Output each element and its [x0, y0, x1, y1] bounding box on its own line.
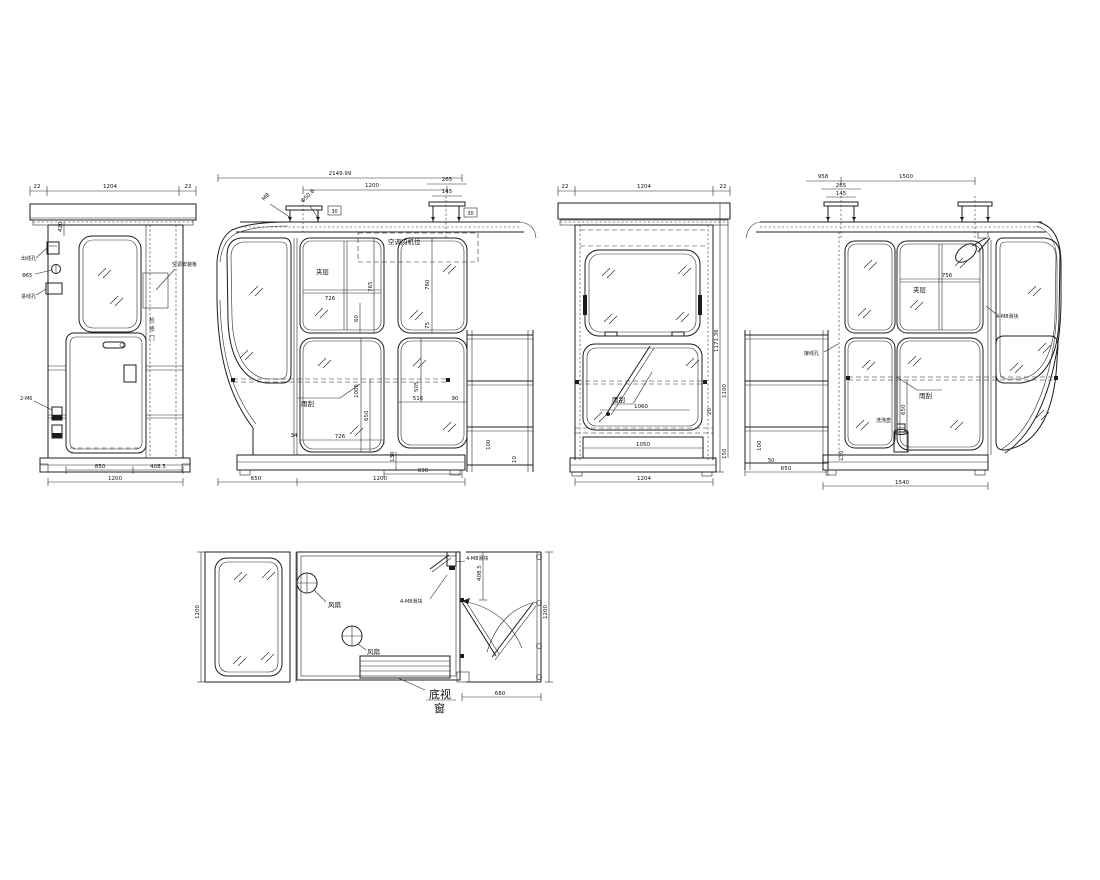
v5-label-slider2: 4-M8滑块	[466, 555, 488, 562]
v2-dim-690: 690	[418, 468, 429, 474]
v5-dim-1200r: 1200	[543, 605, 549, 619]
v2-dim-total: 2149.99	[329, 171, 352, 177]
v1-access-door	[66, 333, 146, 453]
cab-drawing: 22 1204 22 420	[0, 0, 1100, 880]
v4-dim-756: 756	[942, 273, 953, 279]
v5-label-fan1: 风扇	[328, 600, 341, 609]
v4-dim-1540: 1540	[895, 480, 909, 486]
v4-label-wiper: 雨刮	[919, 391, 932, 400]
v1-bottom-dims: 850 408.5 1200	[48, 464, 183, 486]
v1-label-ac-plate: 空调安装板	[172, 261, 197, 268]
v4-label-slider: 4-M8滑块	[996, 313, 1018, 320]
v3-dim-1060: 1060	[634, 404, 648, 410]
v4-dim-650: 650	[781, 466, 792, 472]
v3-right-dims: 1171.36 1100 20 150	[707, 203, 728, 472]
v1-door-window	[79, 236, 141, 332]
view-left-side: 22 1204 22 420	[20, 184, 197, 486]
v5-open-door	[460, 598, 536, 660]
v4-front-window	[996, 238, 1060, 383]
v2-front-window	[227, 238, 291, 383]
view-bottom: 风扇 风扇 底视 窗 4-M8滑块 4-M8滑块 408.5	[195, 552, 553, 715]
v4-wiper-parked	[846, 376, 1058, 380]
v2-dim-505: 505	[414, 381, 420, 392]
v2-top-dims: 2149.99 1200 265 145 M8 Φ50.8	[218, 171, 467, 218]
v4-dim-265: 265	[836, 183, 847, 189]
v3-dim-22l: 22	[562, 184, 569, 190]
v3-body	[575, 225, 713, 460]
v4-dim-130: 130	[839, 450, 845, 461]
v1-label-access-door-1: 检	[149, 316, 155, 324]
v1-dim-1204: 1204	[103, 184, 117, 190]
v4-dim-100: 100	[757, 440, 763, 451]
v2-dim-30a: 30	[331, 209, 337, 215]
v1-label-access-door-3: 门	[149, 334, 155, 342]
v3-dim-150: 150	[722, 448, 728, 459]
v2-dim-726: 726	[325, 296, 336, 302]
v3-wiper-parked	[575, 380, 707, 384]
v3-dim-height: 1171.36	[714, 329, 720, 352]
v1-label-inlet-hole: 进线孔	[21, 293, 36, 300]
v2-dim-650v: 650	[364, 410, 370, 421]
v1-dim-1200: 1200	[108, 476, 122, 482]
v5-dim-680: 680	[495, 691, 506, 697]
v2-base	[237, 455, 465, 475]
v2-label-wiper: 雨刮	[301, 399, 314, 408]
v2-walkway: 100 10	[467, 330, 533, 472]
v2-dim-650: 650	[251, 476, 262, 482]
v4-upper-left-window	[845, 241, 895, 333]
view-front: 22 1204 22	[558, 184, 730, 486]
horn-icon	[952, 232, 990, 266]
v5-fan-2	[342, 626, 362, 646]
v4-label-wire-hole: 接线孔	[804, 350, 819, 357]
v1-dim-4085: 408.5	[150, 464, 166, 470]
v2-bottom-dims: 650 1200	[218, 476, 465, 486]
v2-label-glass: 夹层	[316, 267, 330, 276]
v2-dim-1005: 1005	[354, 384, 360, 398]
v5-left-panel	[205, 552, 296, 682]
v2-front-profile	[217, 262, 256, 455]
v4-dim-958: 958	[818, 174, 829, 180]
v5-dim-1200l: 1200	[195, 605, 201, 619]
v2-dim-765: 765	[368, 281, 374, 292]
v3-dim-20: 20	[707, 408, 713, 415]
v3-dim-22r: 22	[720, 184, 727, 190]
v3-dim-1204: 1204	[637, 184, 651, 190]
v4-label-glass: 夹层	[913, 285, 927, 294]
v1-dim-22r: 22	[185, 184, 192, 190]
v4-dim-50: 50	[768, 458, 774, 464]
v2-dim-10: 10	[512, 456, 518, 463]
v3-dim-1050: 1050	[636, 442, 650, 448]
v1-label-phi65: Φ65	[22, 273, 32, 279]
v3-roof	[558, 203, 730, 219]
v4-upper-mid-window	[897, 241, 983, 333]
v2-dim-726b: 726	[335, 434, 346, 440]
v4-top-dims: 958 1500 265 145	[806, 174, 975, 197]
v1-door-lock	[124, 365, 136, 382]
v4-washer-bottle	[894, 424, 908, 452]
v2-upper-right-window	[398, 238, 467, 333]
v4-label-washer: 洗涤壶	[876, 417, 891, 424]
v2-dim-145: 145	[442, 189, 453, 195]
v2-dim-75: 75	[425, 322, 431, 329]
v3-lower-panel: 1050	[583, 437, 703, 458]
v2-label-phi508: Φ50.8	[300, 188, 316, 204]
v5-bottom-window	[360, 656, 450, 678]
v2-dim-1200: 1200	[365, 183, 379, 189]
v3-base	[570, 458, 716, 476]
v4-bottom-dims: 1540	[823, 480, 988, 490]
v5-dim-4085: 408.5	[477, 565, 483, 581]
v2-dim-130: 130	[390, 451, 396, 462]
v2-dim-516: 516	[413, 396, 424, 402]
v3-label-wiper: 雨刮	[612, 395, 625, 404]
v2-dim-780: 780	[425, 279, 431, 290]
v2-dim-90: 90	[452, 396, 459, 402]
v5-label-bottom-view-2: 窗	[434, 701, 445, 715]
v1-ac-plate	[143, 273, 168, 308]
v2-roof-brackets: 30 30	[286, 196, 477, 240]
v4-base	[823, 455, 988, 475]
v4-roof-rail	[746, 222, 1061, 453]
v4-lower-left-window	[845, 338, 895, 448]
v2-dim-34: 34	[291, 433, 298, 439]
v1-label-2m6: 2-M6	[20, 396, 32, 402]
cad-sheet: 22 1204 22 420	[0, 0, 1100, 880]
v4-dim-650v: 650	[901, 404, 907, 415]
v4-lower-mid-window	[897, 338, 983, 450]
v3-top-dims: 22 1204 22	[558, 184, 730, 196]
v1-label-access-door-2: 修	[149, 325, 155, 333]
v2-label-m8: M8	[261, 192, 271, 202]
v2-dim-1200b: 1200	[373, 476, 387, 482]
v3-bottom-dims: 1204	[575, 476, 713, 486]
view-front-left: 2149.99 1200 265 145 M8 Φ50.8 30	[217, 171, 536, 486]
v1-dim-850: 850	[95, 464, 106, 470]
v2-dim-265: 265	[442, 177, 453, 183]
v5-label-fan2: 风扇	[367, 647, 380, 656]
v3-dim-1204b: 1204	[637, 476, 651, 482]
v1-label-outlet-hole: 出线孔	[21, 255, 36, 262]
v4-dim-1500: 1500	[899, 174, 913, 180]
v1-dim-420: 420	[58, 221, 64, 232]
v1-roof	[30, 204, 196, 220]
v5-door-bracket	[430, 552, 456, 572]
v2-dim-60: 60	[354, 315, 360, 322]
view-right-side: 958 1500 265 145	[745, 174, 1061, 490]
v5-label-slider1: 4-M8滑块	[400, 598, 422, 605]
v2-lower-right-window	[398, 338, 467, 448]
v2-dim-100: 100	[486, 439, 492, 450]
v1-top-dims: 22 1204 22	[30, 184, 196, 196]
v4-roof-brackets	[824, 196, 992, 240]
v3-dim-1100: 1100	[722, 384, 728, 398]
v2-dim-30b: 30	[467, 211, 473, 217]
v3-upper-window	[583, 250, 702, 336]
v5-label-bottom-view-1: 底视	[429, 687, 451, 701]
v1-dim-22l: 22	[34, 184, 41, 190]
